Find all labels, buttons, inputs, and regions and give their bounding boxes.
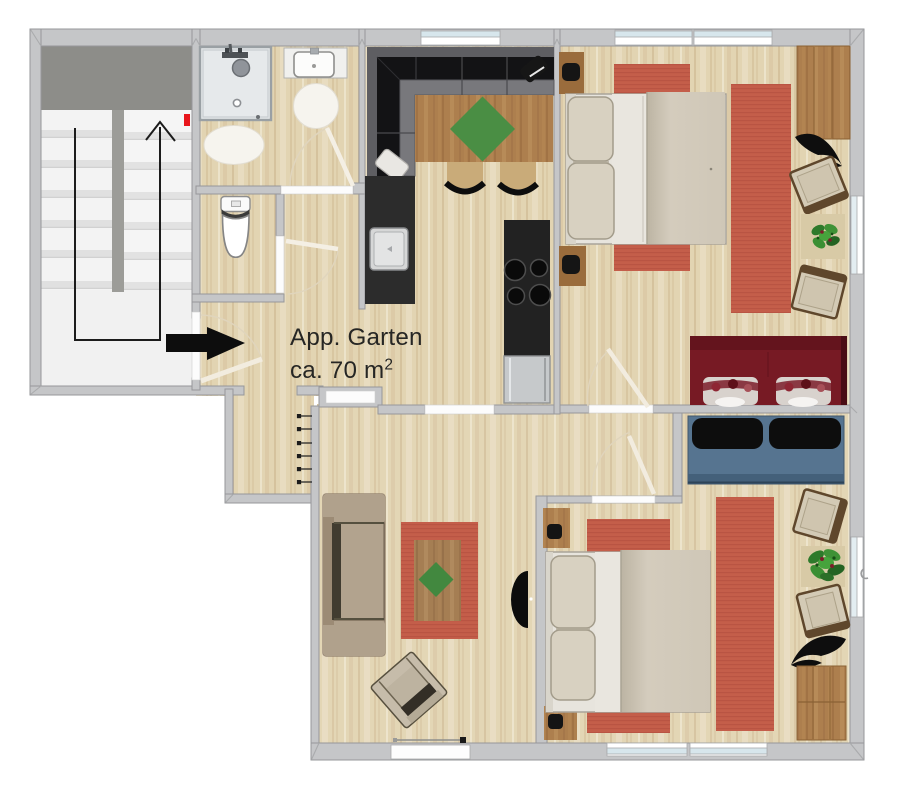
svg-text:ca. 70 m2: ca. 70 m2 — [290, 357, 393, 385]
svg-text:App. Garten: App. Garten — [290, 324, 423, 351]
